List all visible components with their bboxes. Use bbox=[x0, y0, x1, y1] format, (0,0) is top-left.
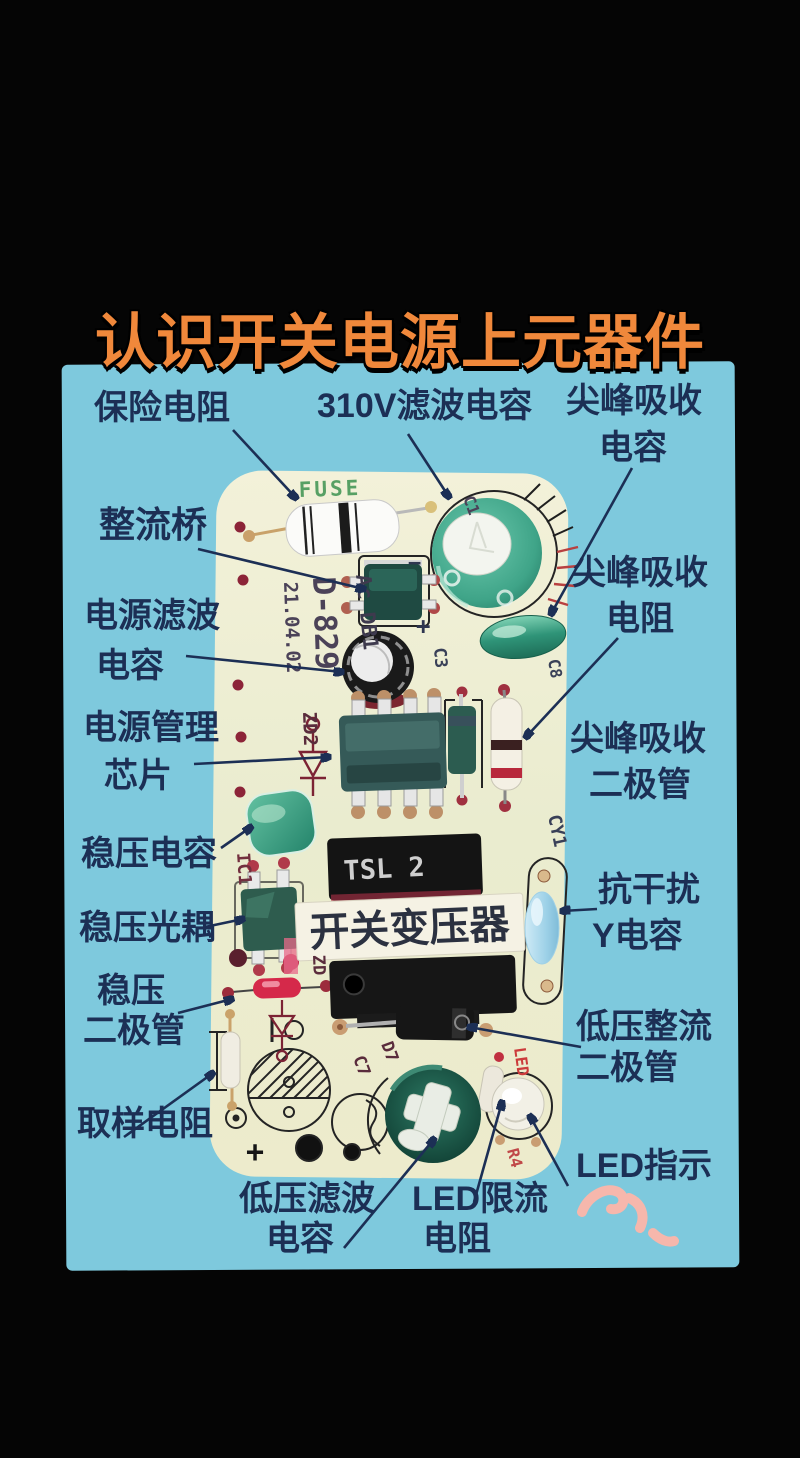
label-reg-diode-line2: 二极管 bbox=[83, 1014, 185, 1050]
svg-text:+: + bbox=[246, 1135, 264, 1170]
label-310v-cap: 310V滤波电容 bbox=[317, 389, 532, 425]
svg-text:21.04.02: 21.04.02 bbox=[279, 581, 304, 673]
svg-text:ZD: ZD bbox=[308, 954, 329, 975]
transformer-label: 开关变压器 bbox=[309, 903, 512, 956]
transformer-marking: TSL 2 bbox=[343, 852, 426, 887]
label-spike-cap-line1: 尖峰吸收 bbox=[566, 384, 702, 420]
label-lv-filter-line2: 电容 bbox=[266, 1222, 334, 1258]
label-rectifier-bridge: 整流桥 bbox=[99, 506, 207, 544]
svg-text:ZD2: ZD2 bbox=[298, 711, 321, 746]
svg-text:C8: C8 bbox=[544, 657, 566, 679]
label-fuse-resistor: 保险电阻 bbox=[94, 391, 230, 427]
svg-text:IC1: IC1 bbox=[232, 852, 255, 886]
svg-text:+: + bbox=[416, 612, 430, 640]
label-lv-rect-line2: 二极管 bbox=[576, 1051, 678, 1087]
label-spike-res-line2: 电阻 bbox=[606, 602, 674, 638]
label-sampling-res: 取样电阻 bbox=[77, 1107, 213, 1143]
svg-text:FUSE: FUSE bbox=[298, 476, 361, 502]
label-lv-rect-line1: 低压整流 bbox=[576, 1010, 712, 1046]
label-lv-filter-line1: 低压滤波 bbox=[239, 1182, 375, 1218]
label-led-indicator: LED指示 bbox=[576, 1149, 712, 1185]
cap-310v-component bbox=[432, 498, 542, 608]
label-spike-diode-line1: 尖峰吸收 bbox=[570, 722, 706, 758]
label-led-res-line1: LED限流 bbox=[412, 1182, 548, 1218]
label-reg-cap: 稳压电容 bbox=[81, 837, 217, 873]
label-spike-res-line1: 尖峰吸收 bbox=[572, 556, 708, 592]
svg-text:−: − bbox=[408, 551, 421, 576]
label-power-filter-line1: 电源滤波 bbox=[84, 599, 220, 635]
label-spike-cap-line2: 电容 bbox=[599, 431, 667, 467]
label-pm-chip-line2: 芯片 bbox=[104, 759, 172, 795]
label-y-cap-line1: 抗干扰 bbox=[598, 873, 700, 909]
reg-cap-component bbox=[244, 788, 318, 859]
page-title: 认识开关电源上元器件 bbox=[0, 294, 800, 381]
lv-filter-cap-component bbox=[385, 1067, 481, 1163]
label-spike-diode-line2: 二极管 bbox=[589, 768, 691, 804]
label-power-filter-line2: 电容 bbox=[96, 649, 164, 685]
label-pm-chip-line1: 电源管理 bbox=[83, 711, 219, 747]
label-reg-diode-line1: 稳压 bbox=[97, 974, 165, 1010]
svg-text:LED: LED bbox=[510, 1046, 533, 1077]
label-y-cap-line2: Y电容 bbox=[592, 919, 683, 955]
scene: 认识开关电源上元器件 bbox=[0, 0, 800, 1458]
label-reg-opto: 稳压光耦 bbox=[79, 911, 215, 947]
svg-text:C3: C3 bbox=[429, 647, 451, 669]
label-led-res-line2: 电阻 bbox=[423, 1222, 491, 1258]
svg-text:D-829: D-829 bbox=[305, 576, 344, 671]
